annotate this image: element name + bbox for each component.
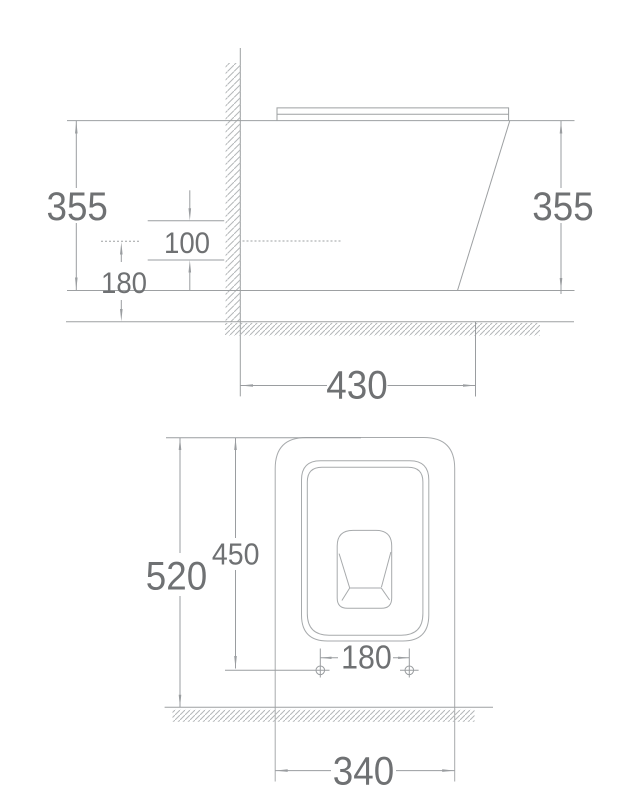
- svg-text:100: 100: [164, 227, 210, 260]
- svg-text:355: 355: [47, 185, 108, 230]
- svg-text:450: 450: [212, 537, 260, 571]
- svg-text:340: 340: [333, 749, 394, 794]
- svg-text:355: 355: [532, 185, 593, 230]
- svg-text:520: 520: [146, 554, 207, 599]
- svg-text:180: 180: [101, 267, 147, 300]
- svg-text:180: 180: [341, 638, 392, 675]
- svg-text:430: 430: [326, 363, 387, 408]
